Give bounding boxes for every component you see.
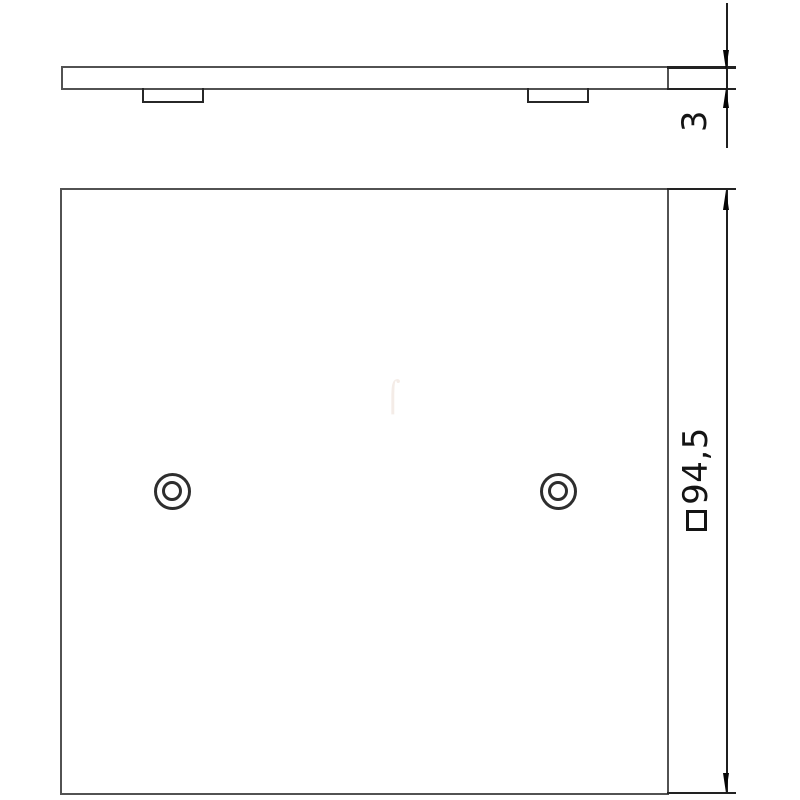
side-length-dimension-label: 94,5 bbox=[621, 404, 771, 554]
thickness-value: 3 bbox=[675, 110, 715, 132]
screw-hole-right-inner-circle bbox=[548, 481, 568, 501]
side-length-value: 94,5 bbox=[676, 427, 716, 505]
technical-drawing-canvas: 3 ⌠ 94,5 bbox=[0, 0, 800, 800]
side-view-plate-profile bbox=[61, 66, 669, 90]
side-length-arrow-down-icon bbox=[723, 773, 729, 793]
side-length-arrow-up-icon bbox=[723, 190, 729, 210]
side-view-clip-tab-left bbox=[142, 88, 204, 103]
screw-hole-left-inner-circle bbox=[162, 481, 182, 501]
front-view-plate-outline bbox=[60, 188, 669, 795]
side-view-clip-tab-right bbox=[527, 88, 589, 103]
thickness-dimension-label: 3 bbox=[655, 81, 735, 161]
square-section-symbol-icon bbox=[686, 510, 707, 531]
thickness-arrow-down-icon bbox=[723, 50, 729, 70]
faint-watermark-mark: ⌠ bbox=[385, 380, 401, 415]
